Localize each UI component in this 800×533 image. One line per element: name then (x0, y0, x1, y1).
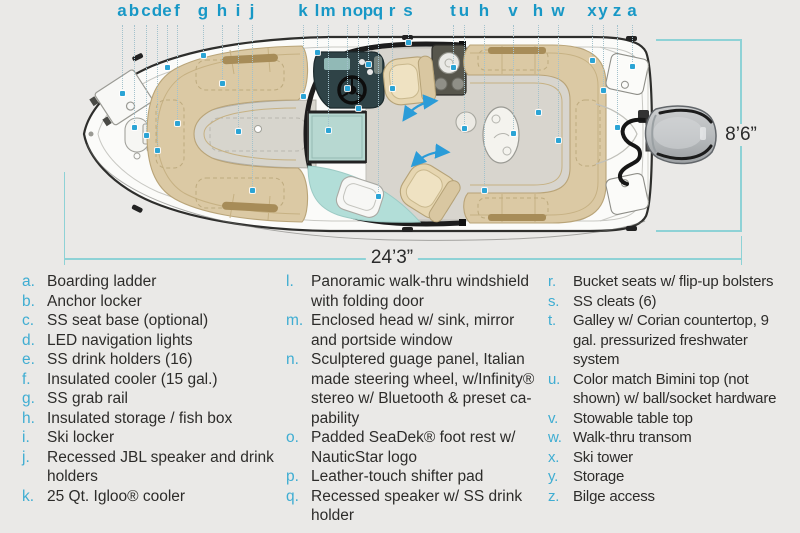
callout-leader-line (408, 25, 409, 38)
legend-item-c: c.SS seat base (optional) (22, 311, 284, 331)
feature-dot-q (376, 194, 381, 199)
legend-item-letter: n. (286, 350, 311, 370)
legend-item-letter: f. (22, 370, 47, 390)
legend-item-b: b.Anchor locker (22, 292, 284, 312)
callout-leader-line (358, 25, 359, 104)
legend-item-letter: k. (22, 487, 47, 507)
legend-item-letter: l. (286, 272, 311, 292)
callout-leader-line (632, 25, 633, 62)
callout-letter-u: u (459, 0, 469, 22)
legend-item-text: Anchor locker (47, 292, 284, 312)
legend-column-1: a.Boarding ladderb.Anchor lockerc.SS sea… (22, 272, 284, 506)
legend-item-letter: r. (548, 272, 573, 292)
feature-dot-a (120, 91, 125, 96)
feature-dot-g (201, 53, 206, 58)
legend-item-text: Recessed JBL speaker and drink holders (47, 448, 284, 487)
callout-letter-h: h (533, 0, 543, 22)
legend-item-text: SS cleats (6) (573, 292, 794, 312)
legend-item-text: Bilge access (573, 487, 794, 507)
callout-letter-a: a (627, 0, 636, 22)
legend-item-letter: c. (22, 311, 47, 331)
callout-leader-line (203, 25, 204, 51)
feature-dot-s (406, 40, 411, 45)
legend-item-t: t.Galley w/ Corian countertop, 9 gal. pr… (548, 311, 794, 370)
feature-dot-x (590, 58, 595, 63)
feature-dot-h (482, 188, 487, 193)
callout-letter-y: y (598, 0, 607, 22)
feature-dot-l (315, 50, 320, 55)
legend-item-letter: o. (286, 428, 311, 448)
callout-letter-e: e (162, 0, 171, 22)
beam-connector-bottom (656, 230, 741, 232)
legend-item-letter: z. (548, 487, 573, 507)
callout-letter-w: w (551, 0, 564, 22)
legend-item-letter: a. (22, 272, 47, 292)
callout-leader-line (484, 25, 485, 186)
legend-item-x: x.Ski tower (548, 448, 794, 468)
legend-item-text: 25 Qt. Igloo® cooler (47, 487, 284, 507)
legend-item-q: q.Recessed speaker w/ SS drink holder (286, 487, 542, 526)
callout-letter-h: h (217, 0, 227, 22)
legend-item-text: Sculptered guage panel, Italian made ste… (311, 350, 542, 428)
callout-letter-a: a (117, 0, 126, 22)
callout-leader-line (122, 25, 123, 89)
callout-leader-line (453, 25, 454, 63)
feature-dot-w (556, 138, 561, 143)
legend-item-o: o.Padded SeaDek® foot rest w/ NauticStar… (286, 428, 542, 467)
legend-item-y: y.Storage (548, 467, 794, 487)
beam-connector-top (656, 39, 741, 41)
legend-item-letter: m. (286, 311, 311, 331)
callout-letter-k: k (298, 0, 307, 22)
feature-dot-a (630, 64, 635, 69)
feature-dot-r (390, 86, 395, 91)
callout-letter-r: r (389, 0, 396, 22)
callout-letter-l: l (315, 0, 320, 22)
feature-dot-h (536, 110, 541, 115)
callout-letter-d: d (152, 0, 162, 22)
feature-dot-h (220, 81, 225, 86)
callout-leader-line (368, 25, 369, 60)
legend-item-text: SS grab rail (47, 389, 284, 409)
callout-letter-g: g (198, 0, 208, 22)
feature-dot-e (165, 65, 170, 70)
legend-item-m: m.Enclosed head w/ sink, mirror and port… (286, 311, 542, 350)
feature-dot-b (132, 125, 137, 130)
callout-leader-line (222, 25, 223, 79)
legend-item-letter: i. (22, 428, 47, 448)
legend-item-text: Boarding ladder (47, 272, 284, 292)
legend-item-text: Recessed speaker w/ SS drink holder (311, 487, 542, 526)
feature-dot-d (155, 148, 160, 153)
callout-letter-j: j (250, 0, 255, 22)
length-tick-left (64, 252, 66, 265)
callout-leader-line (392, 25, 393, 84)
callout-letter-n: n (342, 0, 352, 22)
legend-item-text: Storage (573, 467, 794, 487)
legend-item-g: g.SS grab rail (22, 389, 284, 409)
callout-leader-line (177, 25, 178, 119)
callout-leader-line (513, 25, 514, 129)
callout-letter-s: s (403, 0, 412, 22)
legend-item-text: Bucket seats w/ flip-up bolsters (573, 272, 794, 292)
legend-item-v: v.Stowable table top (548, 409, 794, 429)
legend-item-letter: v. (548, 409, 573, 429)
callout-letter-h: h (479, 0, 489, 22)
legend-item-u: u.Color match Bimini top (not shown) w/ … (548, 370, 794, 409)
legend-item-a: a.Boarding ladder (22, 272, 284, 292)
legend-item-k: k.25 Qt. Igloo® cooler (22, 487, 284, 507)
legend-column-3: r.Bucket seats w/ flip-up bolsterss.SS c… (548, 272, 794, 506)
feature-dot-m (326, 128, 331, 133)
legend-item-p: p.Leather-touch shifter pad (286, 467, 542, 487)
legend-item-letter: h. (22, 409, 47, 429)
feature-dot-n (345, 86, 350, 91)
legend-item-text: Color match Bimini top (not shown) w/ ba… (573, 370, 794, 409)
legend-item-r: r.Bucket seats w/ flip-up bolsters (548, 272, 794, 292)
legend-item-text: SS seat base (optional) (47, 311, 284, 331)
callout-leader-line (558, 25, 559, 136)
callout-letter-o: o (353, 0, 363, 22)
callout-leader-line (134, 25, 135, 123)
legend-item-letter: u. (548, 370, 573, 390)
callout-letter-v: v (508, 0, 517, 22)
legend-item-e: e.SS drink holders (16) (22, 350, 284, 370)
length-dimension-label: 24’3” (366, 247, 418, 269)
legend-item-text: Walk-thru transom (573, 428, 794, 448)
legend-item-letter: t. (548, 311, 573, 331)
feature-dot-z (615, 125, 620, 130)
legend-item-letter: x. (548, 448, 573, 468)
feature-dot-o (356, 106, 361, 111)
callout-leader-line (238, 25, 239, 127)
legend-item-z: z.Bilge access (548, 487, 794, 507)
legend-item-j: j.Recessed JBL speaker and drink holders (22, 448, 284, 487)
legend-item-h: h.Insulated storage / fish box (22, 409, 284, 429)
legend-item-letter: y. (548, 467, 573, 487)
legend-item-text: Leather-touch shifter pad (311, 467, 542, 487)
callout-letter-i: i (236, 0, 241, 22)
legend-item-text: Insulated storage / fish box (47, 409, 284, 429)
feature-dot-j (250, 188, 255, 193)
legend-column-2: l.Panoramic walk-thru windshield with fo… (286, 272, 542, 526)
legend-item-text: Padded SeaDek® foot rest w/ NauticStar l… (311, 428, 542, 467)
callout-letter-q: q (373, 0, 383, 22)
legend-item-l: l.Panoramic walk-thru windshield with fo… (286, 272, 542, 311)
legend-item-text: LED navigation lights (47, 331, 284, 351)
callout-leader-line (157, 25, 158, 146)
callout-leader-line (347, 25, 348, 84)
callout-leader-line (603, 25, 604, 86)
legend-item-letter: g. (22, 389, 47, 409)
legend-item-letter: d. (22, 331, 47, 351)
legend-item-letter: e. (22, 350, 47, 370)
legend: a.Boarding ladderb.Anchor lockerc.SS sea… (0, 270, 800, 533)
beam-dimension-label: 8’6” (720, 124, 762, 146)
legend-item-text: Panoramic walk-thru windshield with fold… (311, 272, 542, 311)
legend-item-text: Insulated cooler (15 gal.) (47, 370, 284, 390)
legend-item-text: Enclosed head w/ sink, mirror and portsi… (311, 311, 542, 350)
callout-letter-b: b (129, 0, 139, 22)
legend-item-text: Ski tower (573, 448, 794, 468)
callout-letter-z: z (613, 0, 622, 22)
feature-dot-p (366, 62, 371, 67)
legend-item-text: Ski locker (47, 428, 284, 448)
callout-leader-line (317, 25, 318, 48)
feature-dot-y (601, 88, 606, 93)
legend-item-letter: b. (22, 292, 47, 312)
legend-item-letter: p. (286, 467, 311, 487)
legend-item-text: SS drink holders (16) (47, 350, 284, 370)
callout-leader-line (464, 25, 465, 124)
callout-leader-line (146, 25, 147, 131)
feature-dot-c (144, 133, 149, 138)
deck-plan-stage: abcdefghijklmnopqrstuhvhwxyza 8’6” 24’3” (0, 0, 800, 266)
legend-item-letter: s. (548, 292, 573, 312)
length-tick-right (741, 236, 743, 265)
callout-letter-c: c (141, 0, 150, 22)
callout-leader-line (592, 25, 593, 56)
legend-item-s: s.SS cleats (6) (548, 292, 794, 312)
legend-item-letter: w. (548, 428, 573, 448)
length-connector-left (64, 172, 66, 258)
callout-letter-f: f (174, 0, 180, 22)
feature-dot-k (301, 94, 306, 99)
callout-leader-line (252, 25, 253, 186)
legend-item-n: n.Sculptered guage panel, Italian made s… (286, 350, 542, 428)
callout-leader-line (617, 25, 618, 123)
feature-dot-u (462, 126, 467, 131)
callout-leader-line (378, 25, 379, 192)
legend-item-text: Stowable table top (573, 409, 794, 429)
callout-letter-p: p (363, 0, 373, 22)
feature-dot-f (175, 121, 180, 126)
legend-item-d: d.LED navigation lights (22, 331, 284, 351)
legend-item-text: Galley w/ Corian countertop, 9 gal. pres… (573, 311, 794, 370)
legend-item-f: f.Insulated cooler (15 gal.) (22, 370, 284, 390)
boat-specsheet-page: { "diagram": { "beam_label": "8\u20196\u… (0, 0, 800, 533)
callout-leader-line (538, 25, 539, 108)
feature-dot-v (511, 131, 516, 136)
callout-leader-line (303, 25, 304, 92)
callout-leader-line (167, 25, 168, 63)
callout-letter-x: x (587, 0, 596, 22)
callout-letter-m: m (320, 0, 335, 22)
feature-dot-t (451, 65, 456, 70)
legend-item-i: i.Ski locker (22, 428, 284, 448)
callout-leader-line (328, 25, 329, 126)
legend-item-letter: j. (22, 448, 47, 468)
legend-item-w: w.Walk-thru transom (548, 428, 794, 448)
feature-dot-i (236, 129, 241, 134)
callout-letter-t: t (450, 0, 456, 22)
legend-item-letter: q. (286, 487, 311, 507)
